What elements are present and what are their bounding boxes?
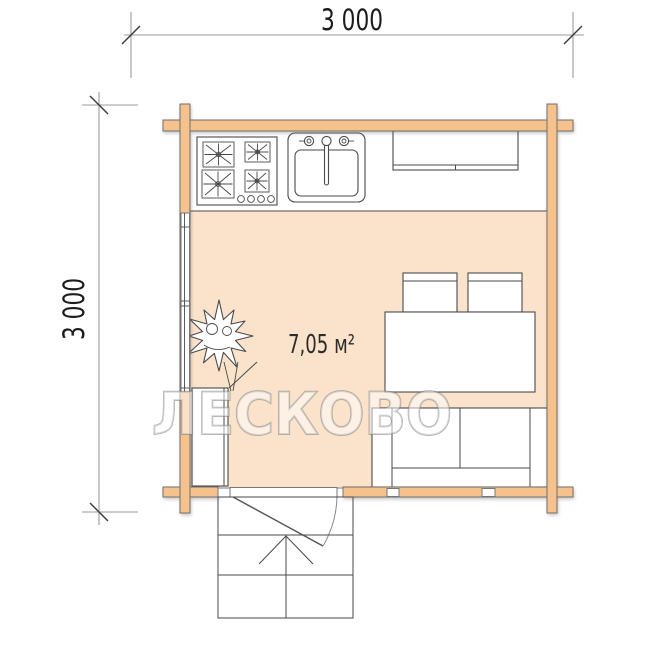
door-opening-threshold: [230, 488, 337, 498]
gas-stove: [197, 137, 277, 205]
dimension-top-label: 3 000: [321, 3, 383, 37]
entrance-door: [233, 497, 337, 546]
floor-plan-drawing: 3 000 3 000 7,05 м² ЛЕСКОВО: [0, 0, 650, 650]
burner-top-right: [245, 142, 270, 162]
burner-bottom-left: [202, 170, 234, 198]
burner-top-left: [203, 142, 234, 167]
watermark-text: ЛЕСКОВО: [152, 380, 452, 448]
bottom-wall-window: [482, 489, 495, 497]
door-swing-arc: [323, 497, 337, 546]
chair: [403, 273, 457, 312]
chair: [468, 273, 522, 312]
door-frame-right-post: [337, 488, 343, 497]
door-frame-left-post: [218, 488, 230, 497]
kitchen-sink: [288, 133, 365, 202]
dimension-left: 3 000: [57, 92, 138, 525]
right-wall-log: [547, 104, 557, 513]
dimension-top: 3 000: [122, 3, 584, 78]
burner-bottom-right: [245, 170, 269, 192]
door-leaf: [233, 497, 323, 546]
top-wall-log: [163, 120, 573, 131]
dimension-left-label: 3 000: [57, 278, 91, 340]
porch-steps: [218, 497, 353, 618]
bottom-wall-window: [387, 489, 399, 497]
bottom-wall-log-right: [343, 487, 573, 497]
kitchen-counter: [393, 131, 518, 170]
room-area-label: 7,05 м²: [288, 330, 355, 360]
left-wall-window: [181, 213, 190, 392]
floor-plan-canvas: 3 000 3 000 7,05 м² ЛЕСКОВО: [0, 0, 650, 650]
